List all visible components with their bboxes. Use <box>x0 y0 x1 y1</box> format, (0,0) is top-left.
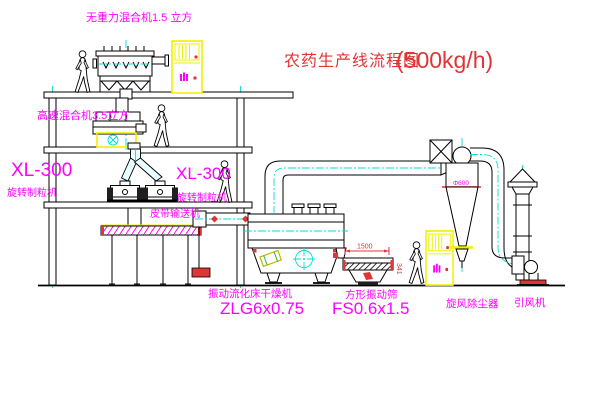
dryer-model-label: ZLG6x0.75 <box>220 299 304 318</box>
high-speed-mixer-label: 高速混合机3.5立方 <box>37 108 129 122</box>
induced-draft-fan-drawing <box>512 256 549 285</box>
rotary-granulator-right-drawing <box>142 181 178 201</box>
y-chute-drawing <box>122 149 163 181</box>
belt-conveyor-label: 皮带输送机 <box>150 207 200 220</box>
person-figure-4 <box>409 242 424 284</box>
cyclone-label: 旋风除尘器 <box>446 297 499 310</box>
sieve-height-dimension: 341 <box>395 263 402 275</box>
high-speed-mixer-drawing <box>93 98 146 149</box>
person-figure-1 <box>75 51 90 93</box>
cad-drawing-canvas: 无重力混合机1.5 立方 农药生产线流程图 (500kg/h) 高速混合机3.5… <box>0 0 600 403</box>
fluid-bed-dryer-drawing <box>244 204 348 283</box>
control-cabinet-upper <box>172 41 202 93</box>
belt-conveyor-drawing <box>101 225 201 285</box>
vibrating-sieve-drawing <box>343 247 393 285</box>
discharge-chute-drawing <box>128 208 141 227</box>
sieve-model-label: FS0.6x1.5 <box>332 299 410 318</box>
cyclone-diameter-dimension: Φ600 <box>453 180 469 187</box>
granulator-left-name-label: 旋转制粒机 <box>7 186 57 199</box>
diagram-title-capacity: (500kg/h) <box>396 47 493 73</box>
person-figure-2 <box>154 105 169 147</box>
granulator-left-model-label: XL-300 <box>11 160 72 181</box>
sieve-length-dimension: 1500 <box>357 244 373 251</box>
granulator-right-name-label: 旋转制粒机 <box>177 191 227 204</box>
granulator-right-model-label: XL-300 <box>176 164 231 183</box>
fan-label: 引风机 <box>514 296 546 309</box>
gravity-mixer-label: 无重力混合机1.5 立方 <box>86 10 192 24</box>
rotary-granulator-left-drawing <box>107 181 143 201</box>
process-flow-diagram: 无重力混合机1.5 立方 农药生产线流程图 (500kg/h) 高速混合机3.5… <box>0 0 600 403</box>
control-cabinet-lower <box>426 231 453 285</box>
